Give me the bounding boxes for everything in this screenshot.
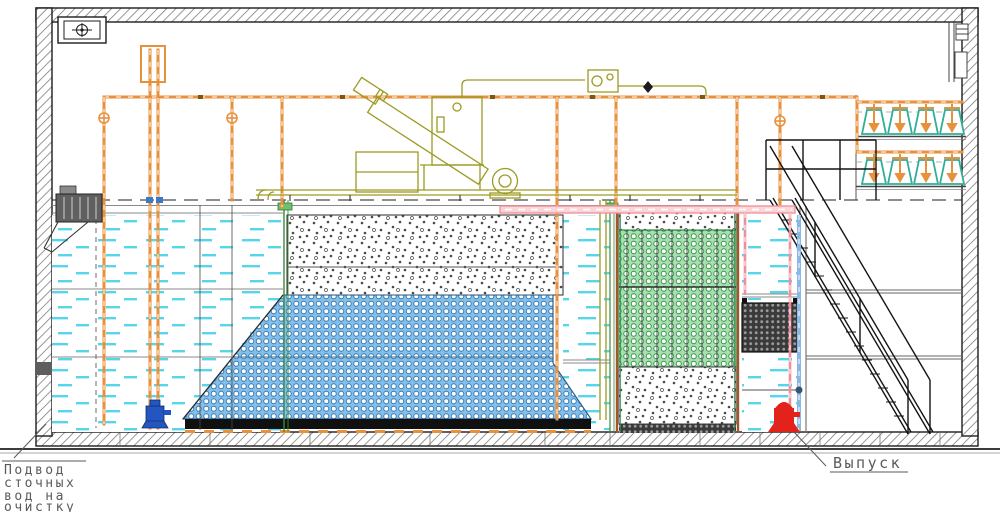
floor-slab (36, 432, 978, 446)
treatment-plant-section-drawing: Подвод сточных вод на очистку Выпуск (0, 0, 1000, 512)
inclined-conveyor-icon (347, 77, 492, 184)
drawing-canvas: Подвод сточных вод на очистку Выпуск (0, 0, 1000, 512)
biofilter-top-gravel (619, 212, 736, 230)
roof-wall (36, 8, 978, 22)
mechanical-equipment (256, 70, 737, 201)
biofilter-bottom-gravel (619, 367, 736, 424)
biofilter-media (619, 230, 736, 367)
ground-line (0, 449, 1000, 453)
air-blower-rack (856, 95, 966, 200)
inlet-pipe-penetration (36, 362, 52, 375)
feed-pump (490, 169, 520, 199)
gravel-layer-middle (287, 215, 563, 295)
riser-valve (796, 387, 803, 394)
circle-cross-valve-icon (99, 113, 785, 126)
inlet-label-line4: очистку (4, 500, 76, 512)
aeration-diffuser-bar (185, 419, 591, 429)
roof-items (58, 17, 968, 82)
outlet-label: Выпуск (833, 454, 902, 472)
cabinet-icon (432, 97, 482, 165)
dosing-pump (588, 70, 618, 92)
air-receiver-tank (141, 46, 165, 82)
fan-box-icon (58, 17, 106, 43)
pipe-clamp (156, 197, 163, 203)
flow-arrow-icon (643, 81, 653, 93)
exhaust-duct (949, 22, 968, 82)
biofilter-drainage-layer (619, 424, 736, 433)
pipe-clamp (146, 197, 153, 203)
biofilter-tank (617, 210, 738, 433)
air-blower-icons (862, 104, 964, 184)
